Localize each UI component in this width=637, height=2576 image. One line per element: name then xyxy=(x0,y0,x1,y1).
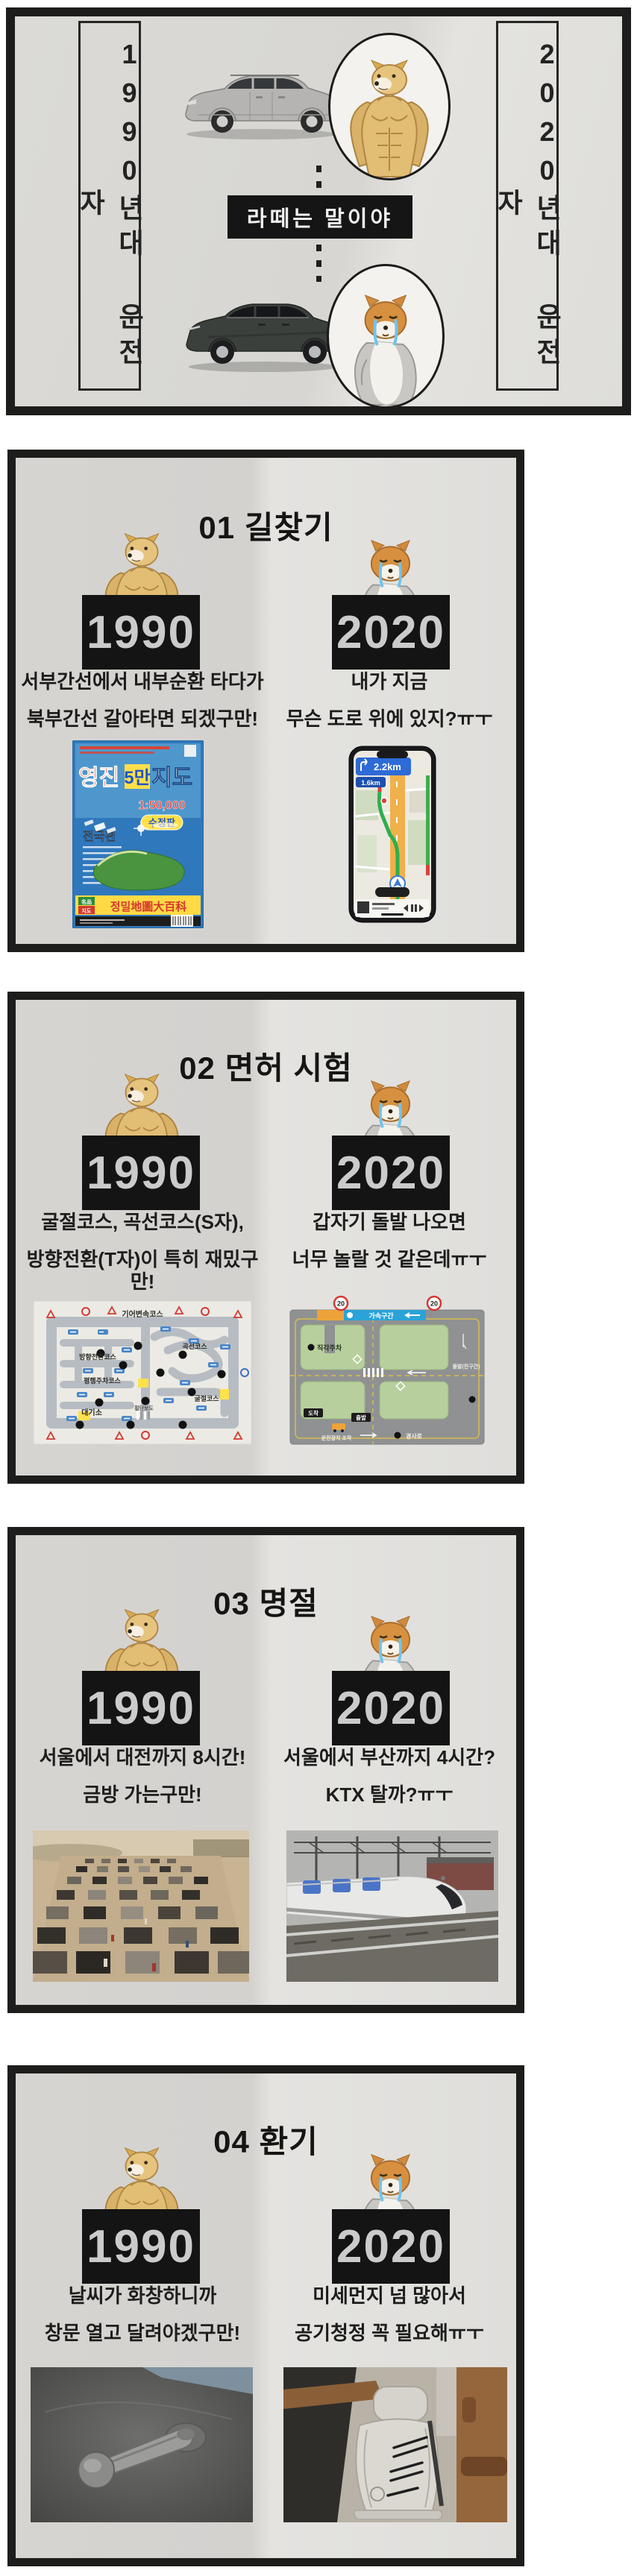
ventilated-seat-photo xyxy=(283,2367,507,2522)
caption-1990-line2: 창문 열고 달려야겠구만! xyxy=(16,2323,269,2345)
suv-1990s-image xyxy=(175,57,347,143)
nav-my-location-pill xyxy=(375,887,409,897)
caption-1990-line1: 서부간선에서 내부순환 타다가 xyxy=(16,671,269,693)
caption-2020-line1: 내가 지금 xyxy=(263,671,516,693)
atlas-scale: 1:50,000 xyxy=(138,799,185,812)
buff-doge-1990-image xyxy=(345,59,434,178)
cheems-frame xyxy=(327,264,445,409)
course2020-speed-sign-right: 20 xyxy=(427,1297,441,1310)
course2020-label-finish: 도착 xyxy=(308,1409,318,1417)
course2020-label-surprise: 돌발(전구간) xyxy=(453,1363,480,1370)
caption-2020-line2: KTX 탈까?ㅠㅜ xyxy=(263,1784,516,1807)
caption-1990-line1: 날씨가 화창하니까 xyxy=(16,2285,269,2308)
atlas-brand-bottom: 지도 xyxy=(82,907,92,914)
old-driving-course-map-image: 기어변속코스 방향전환코스 곡선코스 평행주차코스 굴절코스 대기소 횡단보도 xyxy=(34,1301,251,1444)
hero-panel: 1990년대 운전자 2020년대 운전자 라떼는 말이야 xyxy=(6,7,631,415)
course2020-label-parking: 직각주차 xyxy=(317,1344,342,1352)
seat-door-trim xyxy=(456,2367,507,2522)
year-badge-1990: 1990 xyxy=(82,1136,200,1210)
atlas-title-right: 지도 xyxy=(151,766,192,790)
year-badge-1990: 1990 xyxy=(82,595,200,670)
year-badge-2020: 2020 xyxy=(332,1136,450,1210)
caption-2020-line2: 공기청정 꼭 필요해ㅠㅜ xyxy=(263,2323,516,2345)
section-license-test: 02 면허 시험 1990 2020 굴절코스, 곡선코스(S자), 방향전환(… xyxy=(7,992,524,1484)
caption-2020-line2: 무슨 도로 위에 있지?ㅠㅜ xyxy=(263,708,516,731)
section-ventilation: 04 환기 1990 2020 날씨가 화창하니까 창문 열고 달려야겠구만! … xyxy=(7,2065,524,2566)
year-badge-2020: 2020 xyxy=(332,2209,450,2284)
smartphone-navigation-image: 2.2km 1.6km xyxy=(348,746,436,923)
caption-2020-line1: 갑자기 돌발 나오면 xyxy=(263,1212,516,1234)
section-title: 03 명절 xyxy=(16,1578,516,1624)
cheems-2020-image xyxy=(344,293,427,406)
section-wayfinding: 01 길찾기 1990 2020 서부간선에서 내부순환 타다가 북부간선 갈아… xyxy=(7,450,524,952)
course-label-turn: 방향전환코스 xyxy=(79,1352,116,1361)
course2020-label-start: 출발 xyxy=(356,1414,366,1421)
year-badge-2020: 2020 xyxy=(332,595,450,670)
course2020-label-controls: 운전장치 조작 xyxy=(321,1435,352,1441)
new-driving-course-map-image: 가속구간 20 20 직각주차 돌발(전구간) 도착 출발 운전장치 조작 xyxy=(289,1295,486,1449)
caption-1990-line2: 금방 가는구만! xyxy=(16,1784,269,1807)
atlas-title-mid: 5만 xyxy=(124,768,150,788)
svg-text:20: 20 xyxy=(337,1300,345,1308)
section-title: 02 면허 시험 xyxy=(16,1043,516,1089)
ktx-train-photo xyxy=(286,1830,498,1982)
course-label-waiting: 대기소 xyxy=(81,1408,102,1417)
caption-1990-line1: 서울에서 대전까지 8시간! xyxy=(16,1747,269,1769)
banner-2020s-driver: 2020년대 운전자 xyxy=(496,21,559,391)
course2020-label-accel: 가속구간 xyxy=(368,1311,394,1320)
svg-text:20: 20 xyxy=(430,1300,438,1308)
caption-2020-line1: 서울에서 부산까지 4시간? xyxy=(263,1747,516,1769)
seat-headrest xyxy=(374,2387,427,2421)
buff-doge-frame xyxy=(328,33,451,180)
nav-primary-distance: 2.2km xyxy=(374,761,401,772)
course-label-parallel: 평행주차코스 xyxy=(84,1376,121,1385)
course2020-speed-sign-left: 20 xyxy=(334,1297,348,1310)
window-crank-photo xyxy=(31,2367,253,2522)
course-label-crosswalk: 횡단보도 xyxy=(134,1405,154,1411)
section-holiday: 03 명절 1990 2020 서울에서 대전까지 8시간! 금방 가는구만! … xyxy=(7,1527,524,2013)
dotted-connector-bottom xyxy=(316,245,321,282)
infographic-page: 1990년대 운전자 2020년대 운전자 라떼는 말이야 xyxy=(0,0,637,2576)
suv-2020s-image xyxy=(178,286,349,376)
banner-1990s-driver: 1990년대 운전자 xyxy=(78,21,141,391)
atlas-brand-top: 名品 xyxy=(81,898,92,905)
latte-label: 라떼는 말이야 xyxy=(228,195,412,239)
course-label-curve: 곡선코스 xyxy=(182,1342,207,1350)
svg-text:경사로: 경사로 xyxy=(406,1432,423,1440)
nav-traffic-marker xyxy=(381,798,387,804)
course-label-gear: 기어변속코스 xyxy=(122,1309,163,1319)
atlas-encyclopedia: 정밀地圖大百科 xyxy=(110,900,187,913)
traffic-jam-photo xyxy=(33,1830,249,1982)
nav-secondary-distance: 1.6km xyxy=(361,779,380,787)
caption-1990-line2: 방향전환(T자)이 특히 재밌구만! xyxy=(16,1249,269,1294)
atlas-title-left: 영진 xyxy=(78,766,119,790)
caption-1990-line2: 북부간선 갈아타면 되겠구만! xyxy=(16,708,269,731)
section-title: 04 환기 xyxy=(16,2117,516,2162)
year-badge-2020: 2020 xyxy=(332,1671,450,1745)
caption-2020-line1: 미세먼지 넘 많아서 xyxy=(263,2285,516,2308)
year-badge-1990: 1990 xyxy=(82,2209,200,2284)
section-title: 01 길찾기 xyxy=(16,503,516,548)
paper-road-atlas-image: 영진 5만 지도 1:50,000 수정판 전국편 xyxy=(72,740,204,928)
caption-2020-line2: 너무 놀랄 것 같은데ㅠㅜ xyxy=(263,1249,516,1271)
caption-1990-line1: 굴절코스, 곡선코스(S자), xyxy=(16,1212,269,1234)
year-badge-1990: 1990 xyxy=(82,1671,200,1745)
course-label-angle: 굴절코스 xyxy=(194,1394,219,1402)
